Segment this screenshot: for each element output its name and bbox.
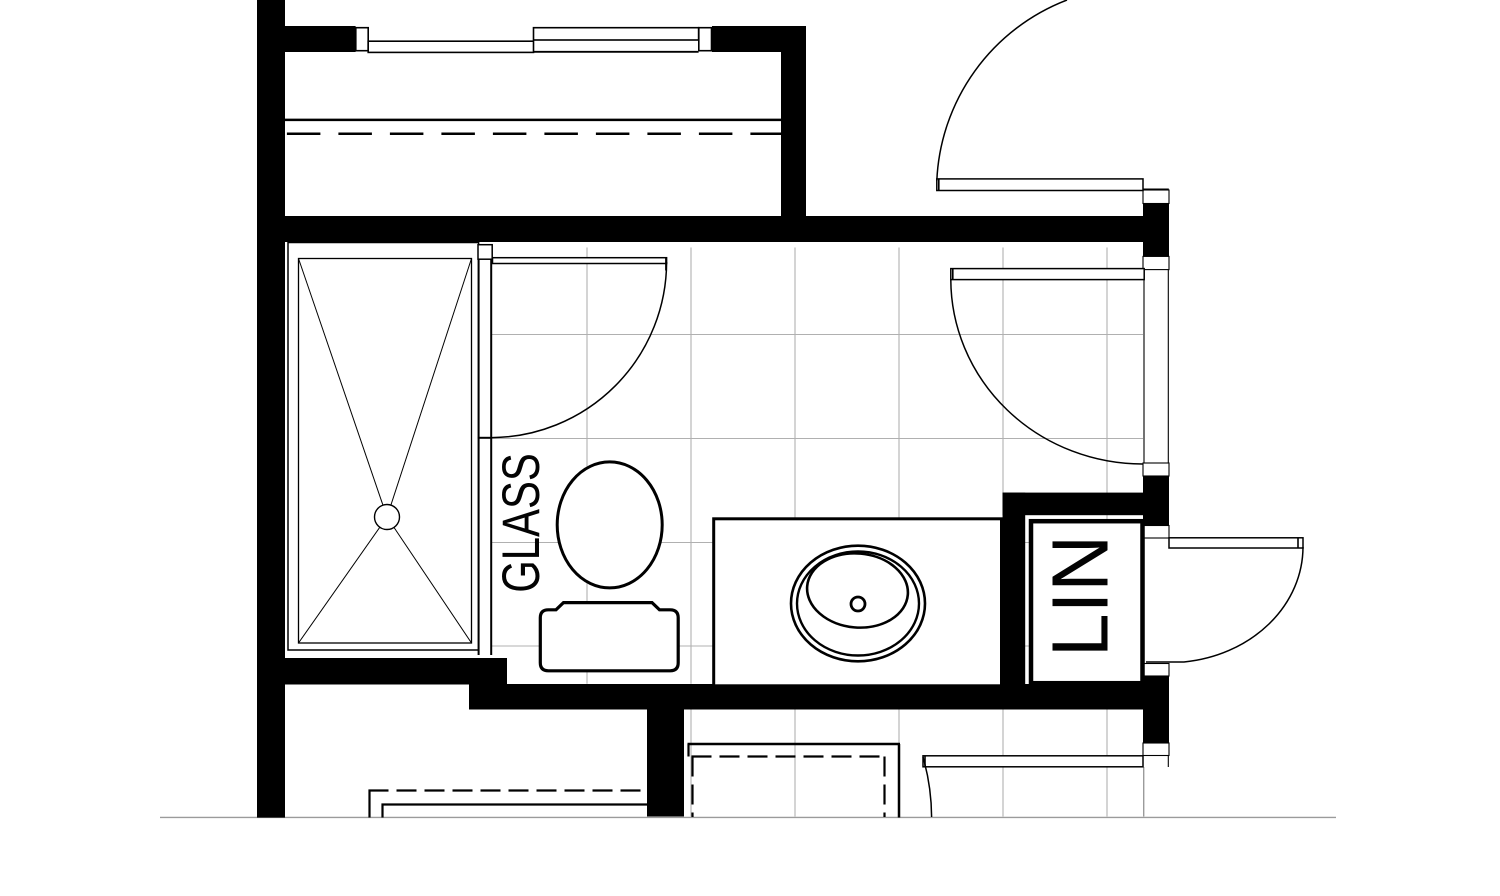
svg-text:LIN: LIN: [1035, 535, 1125, 657]
svg-text:GLASS: GLASS: [492, 453, 551, 593]
